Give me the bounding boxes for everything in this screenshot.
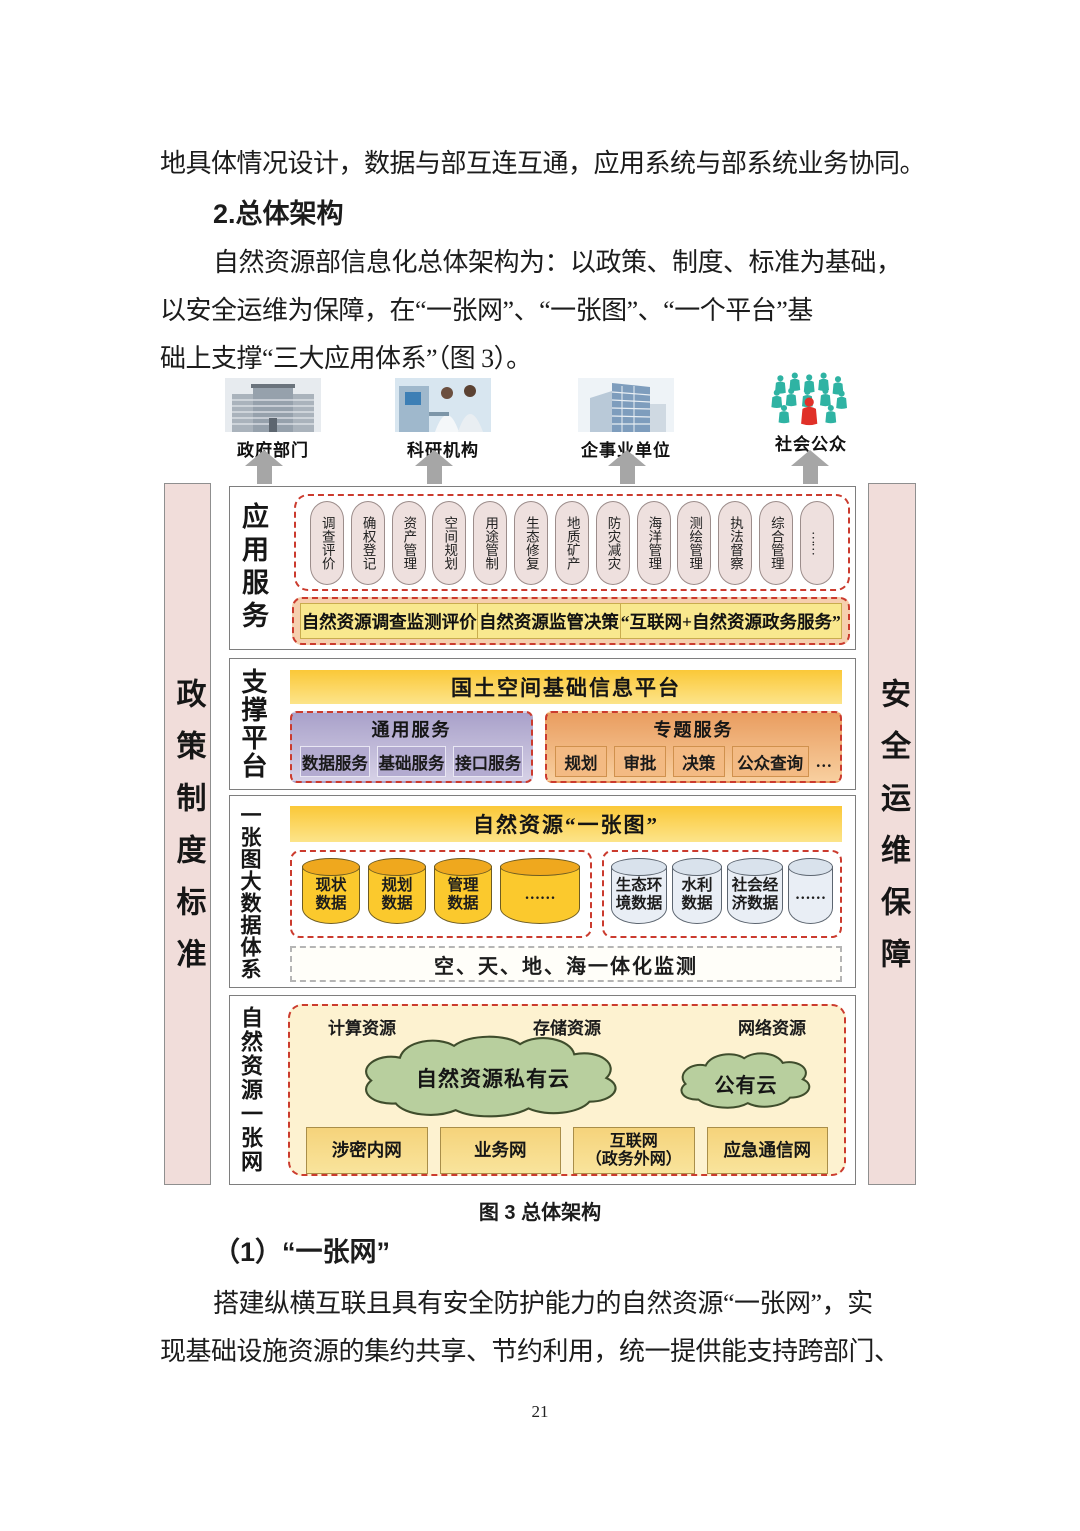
row-onenet: 自然资源一张网 计算资源 存储资源 网络资源 自然资源私有云 公有云 xyxy=(229,995,856,1185)
paragraph-line: 自然资源部信息化总体架构为：以政策、制度、标准为基础， xyxy=(213,242,902,279)
data-cylinder: 生态环 境数据 xyxy=(611,866,667,924)
security-operations-pillar: 安全运维保障 xyxy=(868,483,916,1185)
pillar-label: 安全运维保障 xyxy=(877,678,907,990)
data-cylinder-more: …… xyxy=(788,866,833,924)
row-label: 应用服务 xyxy=(239,487,266,649)
data-cylinder: 规划 数据 xyxy=(368,866,426,924)
research-lab-image xyxy=(395,378,491,432)
application-domain: 综合管理 xyxy=(759,501,793,585)
group-title: 专题服务 xyxy=(555,716,832,742)
thematic-service: 规划 xyxy=(555,746,607,777)
up-arrow-icon xyxy=(245,450,283,484)
application-domain: 测绘管理 xyxy=(677,501,711,585)
application-domain: 海洋管理 xyxy=(637,501,671,585)
application-domain-more: …… xyxy=(800,501,834,585)
row-onemap-bigdata: 一张图大数据体系 自然资源“一张图” 现状 数据 规划 数据 管理 数据 …… … xyxy=(229,795,856,988)
row-label: 自然资源一张网 xyxy=(239,996,261,1184)
group-title: 通用服务 xyxy=(300,716,523,742)
data-cylinder: 社会经 济数据 xyxy=(727,866,783,924)
pillar-label: 政策制度标准 xyxy=(173,678,203,990)
paragraph-line: 地具体情况设计，数据与部互连互通，应用系统与部系统业务协同。 xyxy=(160,143,925,180)
data-cylinder: 现状 数据 xyxy=(302,866,360,924)
paragraph-line: 以安全运维为保障，在“一张网”、“一张图”、“一个平台”基 xyxy=(160,290,813,327)
more-ellipsis: … xyxy=(816,746,833,777)
user-group-public: 社会公众 xyxy=(763,372,859,455)
government-building-image xyxy=(225,378,321,432)
application-domain: 地质矿产 xyxy=(555,501,589,585)
service-segment: “互联网+自然资源政务服务” xyxy=(620,604,841,638)
data-cylinder: 管理 数据 xyxy=(434,866,492,924)
application-domain: 防灾减灾 xyxy=(596,501,630,585)
thematic-service: 决策 xyxy=(673,746,725,777)
figure-caption: 图 3 总体架构 xyxy=(0,1196,1080,1225)
general-services-group: 通用服务 数据服务 基础服务 接口服务 xyxy=(290,711,533,783)
thematic-services-group: 专题服务 规划 审批 决策 公众查询 … xyxy=(545,711,842,783)
network-segment: 业务网 xyxy=(440,1127,562,1174)
up-arrow-icon xyxy=(608,450,646,484)
cloud-label: 公有云 xyxy=(670,1050,822,1116)
general-service: 接口服务 xyxy=(453,746,523,777)
onenet-panel: 计算资源 存储资源 网络资源 自然资源私有云 公有云 涉密内网 业务网 互联网 … xyxy=(288,1004,846,1176)
application-domains-group: 调查评价 确权登记 资产管理 空间规划 用途管制 生态修复 地质矿产 防灾减灾 … xyxy=(294,494,850,591)
service-segment: 自然资源调查监测评价 xyxy=(301,604,477,638)
page-number: 21 xyxy=(0,1402,1080,1422)
up-arrow-icon xyxy=(415,450,453,484)
user-group-government: 政府部门 xyxy=(225,378,321,461)
application-domain: 调查评价 xyxy=(310,501,344,585)
policy-standards-pillar: 政策制度标准 xyxy=(164,483,211,1185)
general-service: 数据服务 xyxy=(300,746,370,777)
row-label: 一张图大数据体系 xyxy=(239,796,260,987)
platform-title-bar: 国土空间基础信息平台 xyxy=(290,670,842,704)
cloud-label: 自然资源私有云 xyxy=(333,1034,653,1122)
service-segment: 自然资源监管决策 xyxy=(477,604,619,638)
paragraph-line: 础上支撑“三大应用体系”（图 3）。 xyxy=(160,338,532,375)
onemap-title-bar: 自然资源“一张图” xyxy=(290,806,842,842)
resource-label: 网络资源 xyxy=(738,1014,806,1039)
public-cloud: 公有云 xyxy=(670,1050,822,1116)
application-domain: 执法督察 xyxy=(718,501,752,585)
row-label: 支撑平台 xyxy=(239,659,265,789)
section-heading: 2.总体架构 xyxy=(213,192,344,231)
row-application-services: 应用服务 调查评价 确权登记 资产管理 空间规划 用途管制 生态修复 地质矿产 … xyxy=(229,486,856,650)
application-domain: 确权登记 xyxy=(351,501,385,585)
core-data-group: 现状 数据 规划 数据 管理 数据 …… xyxy=(290,850,592,938)
public-crowd-image xyxy=(763,372,859,426)
integrated-monitoring-bar: 空、天、地、海一体化监测 xyxy=(290,946,842,982)
thematic-service: 公众查询 xyxy=(732,746,809,777)
external-data-group: 生态环 境数据 水利 数据 社会经 济数据 …… xyxy=(602,850,842,938)
document-page: 地具体情况设计，数据与部互连互通，应用系统与部系统业务协同。 2.总体架构 自然… xyxy=(0,0,1080,1531)
up-arrow-icon xyxy=(791,450,829,484)
row-support-platform: 支撑平台 国土空间基础信息平台 通用服务 数据服务 基础服务 接口服务 专题服务… xyxy=(229,658,856,790)
paragraph-line: 搭建纵横互联且具有安全防护能力的自然资源“一张网”，实 xyxy=(213,1283,873,1320)
network-segment: 应急通信网 xyxy=(707,1127,829,1174)
general-service: 基础服务 xyxy=(377,746,447,777)
user-group-enterprise: 企事业单位 xyxy=(578,378,674,461)
data-cylinder-more: …… xyxy=(500,866,580,924)
application-domain: 资产管理 xyxy=(392,501,426,585)
application-domain: 空间规划 xyxy=(432,501,466,585)
enterprise-building-image xyxy=(578,378,674,432)
subsection-heading: （1）“一张网” xyxy=(213,1230,390,1269)
application-domain: 生态修复 xyxy=(514,501,548,585)
application-domain: 用途管制 xyxy=(473,501,507,585)
thematic-service: 审批 xyxy=(614,746,666,777)
network-segment: 互联网 （政务外网） xyxy=(573,1127,695,1174)
paragraph-line: 现基础设施资源的集约共享、节约利用，统一提供能支持跨部门、 xyxy=(160,1331,900,1368)
network-segment: 涉密内网 xyxy=(306,1127,428,1174)
data-cylinder: 水利 数据 xyxy=(672,866,722,924)
application-systems-group: 自然资源调查监测评价 自然资源监管决策 “互联网+自然资源政务服务” xyxy=(292,597,850,645)
user-group-research: 科研机构 xyxy=(395,378,491,461)
private-cloud: 自然资源私有云 xyxy=(333,1034,653,1122)
